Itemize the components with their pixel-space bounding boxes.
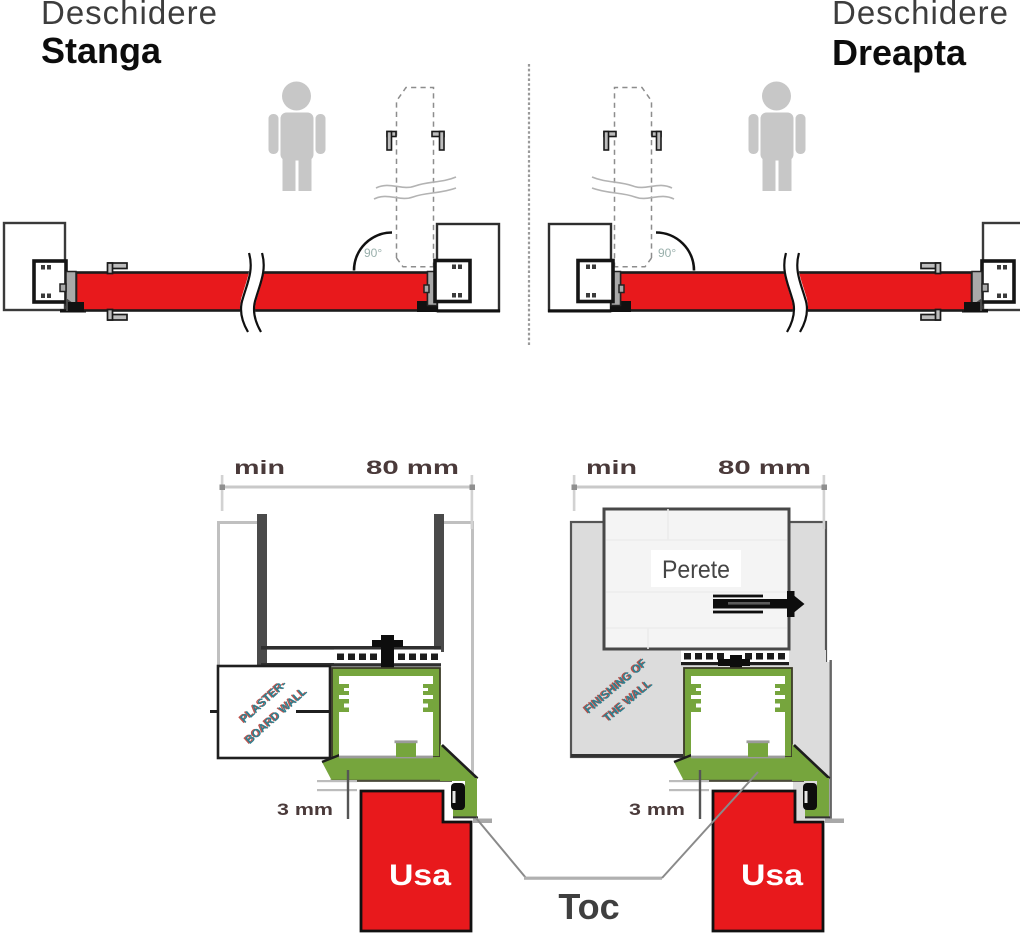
svg-text:90°: 90° xyxy=(658,246,676,260)
svg-text:Perete: Perete xyxy=(662,556,730,584)
svg-text:Toc: Toc xyxy=(558,886,619,927)
svg-text:90°: 90° xyxy=(364,246,382,260)
